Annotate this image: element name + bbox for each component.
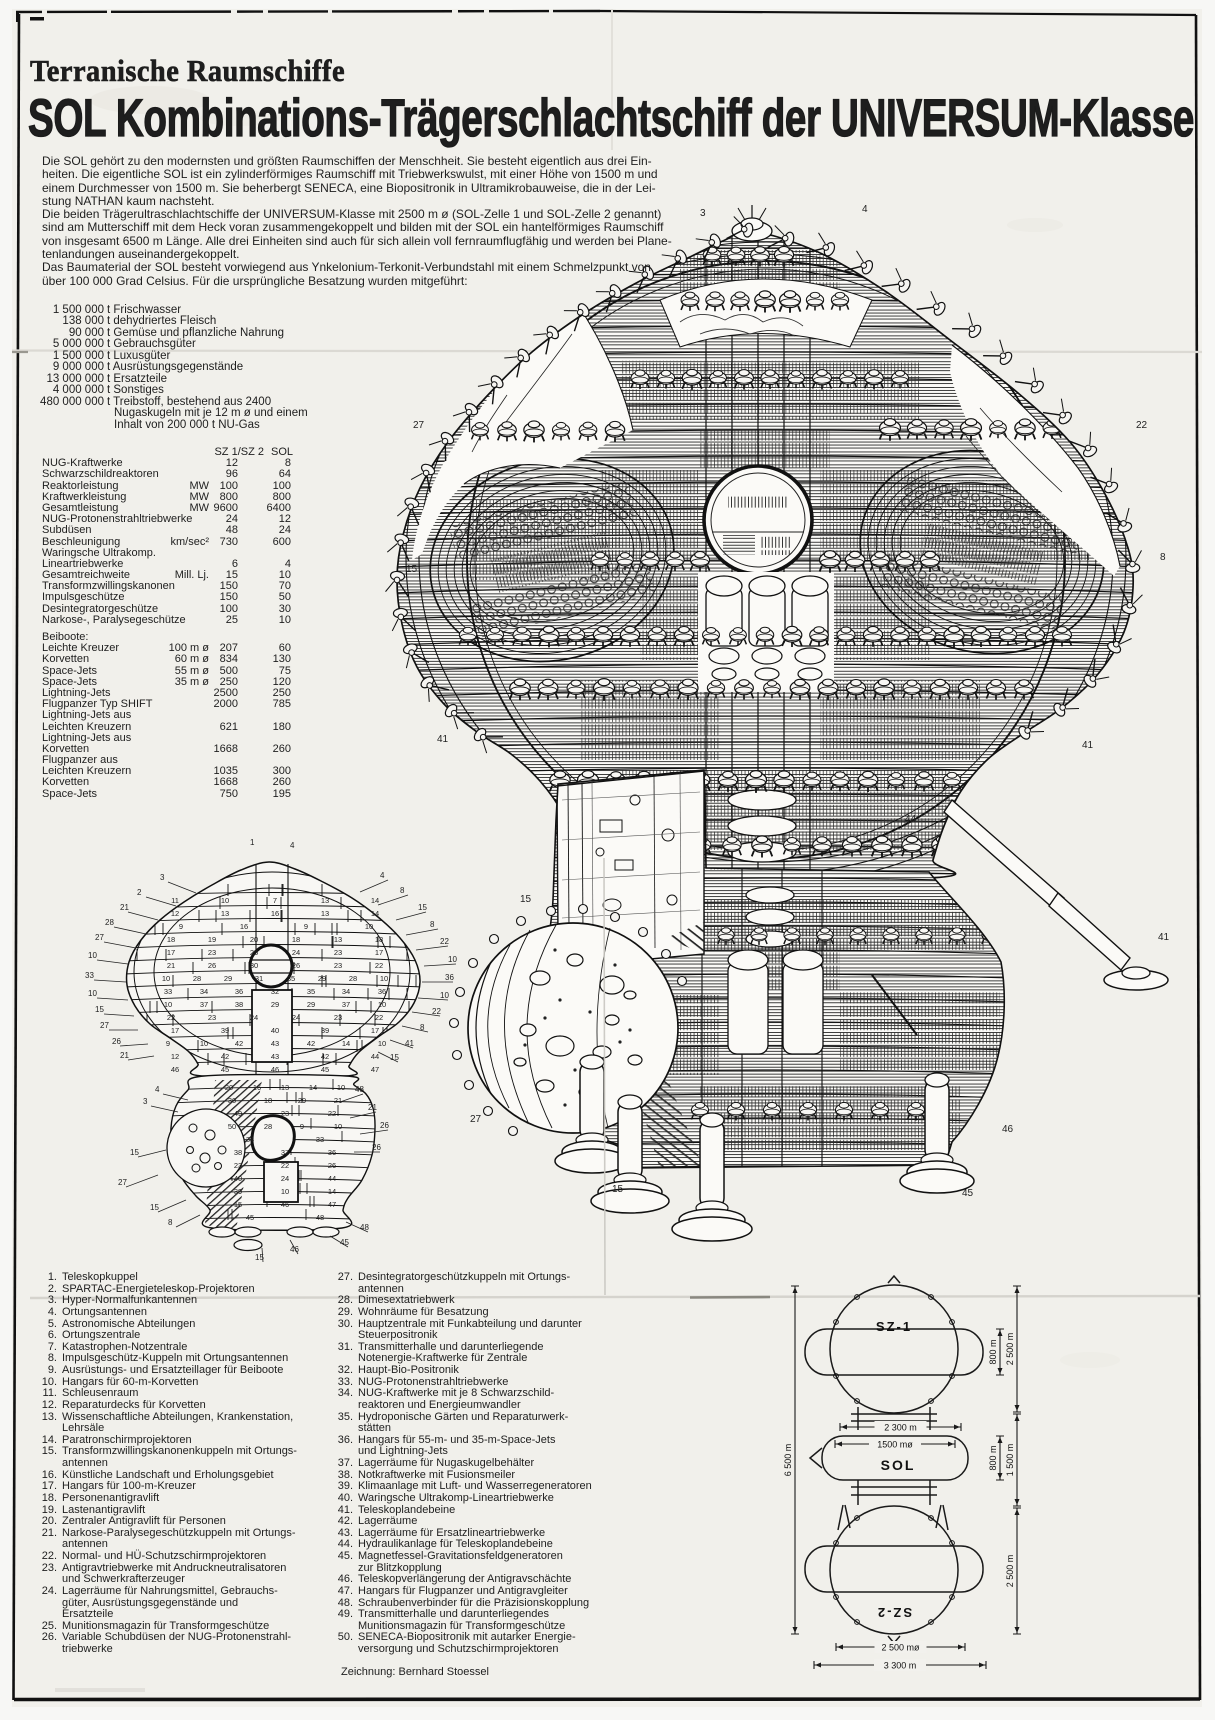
svg-text:17: 17 (167, 948, 175, 957)
svg-text:26: 26 (372, 1143, 381, 1152)
svg-text:21: 21 (368, 1103, 377, 1112)
svg-text:45: 45 (321, 1065, 329, 1074)
svg-text:28: 28 (105, 918, 114, 927)
svg-text:26: 26 (328, 1161, 336, 1170)
svg-text:4: 4 (862, 204, 868, 215)
svg-text:11: 11 (171, 896, 179, 905)
svg-text:13: 13 (334, 935, 342, 944)
svg-text:40: 40 (234, 1174, 242, 1183)
svg-text:10: 10 (221, 896, 229, 905)
svg-text:9: 9 (304, 922, 308, 931)
svg-text:10: 10 (164, 1000, 172, 1009)
svg-text:20: 20 (250, 935, 258, 944)
svg-text:15: 15 (150, 1203, 159, 1212)
svg-text:42: 42 (307, 1039, 315, 1048)
svg-text:3: 3 (143, 1097, 148, 1106)
svg-text:42: 42 (235, 1039, 243, 1048)
svg-text:17: 17 (371, 1026, 379, 1035)
svg-text:37: 37 (342, 1000, 350, 1009)
svg-text:46: 46 (271, 1065, 279, 1074)
svg-text:27: 27 (413, 420, 425, 431)
svg-text:10: 10 (448, 955, 457, 964)
svg-text:44: 44 (905, 814, 917, 825)
svg-text:13: 13 (281, 1083, 289, 1092)
svg-text:27: 27 (118, 1178, 127, 1187)
svg-text:29: 29 (298, 1096, 306, 1105)
svg-text:3: 3 (700, 208, 706, 219)
svg-text:3 300 m: 3 300 m (884, 1661, 917, 1671)
svg-text:15: 15 (95, 1005, 104, 1014)
svg-text:23: 23 (334, 961, 342, 970)
svg-text:39: 39 (234, 1187, 242, 1196)
svg-text:15: 15 (418, 903, 427, 912)
svg-text:37: 37 (281, 1148, 289, 1157)
svg-text:46: 46 (171, 1065, 179, 1074)
svg-text:29: 29 (307, 1000, 315, 1009)
svg-text:SOL: SOL (881, 1457, 916, 1473)
svg-text:29: 29 (224, 974, 232, 983)
svg-text:40: 40 (271, 1026, 279, 1035)
svg-text:45: 45 (340, 1238, 349, 1247)
svg-text:6 500 m: 6 500 m (783, 1444, 793, 1477)
svg-text:27: 27 (100, 1021, 109, 1030)
svg-text:36: 36 (445, 973, 454, 982)
svg-text:15: 15 (255, 1253, 264, 1262)
svg-text:8: 8 (400, 886, 405, 895)
svg-text:49: 49 (234, 1109, 242, 1118)
svg-text:39: 39 (221, 1026, 229, 1035)
svg-text:43: 43 (271, 1052, 279, 1061)
svg-text:30: 30 (228, 1096, 236, 1105)
svg-text:13: 13 (221, 909, 229, 918)
svg-text:38: 38 (234, 1148, 242, 1157)
svg-text:24: 24 (292, 1013, 300, 1022)
svg-text:44: 44 (371, 1052, 379, 1061)
svg-text:3: 3 (160, 873, 165, 882)
svg-text:10: 10 (378, 1000, 386, 1009)
svg-text:47: 47 (371, 1065, 379, 1074)
svg-text:46: 46 (281, 1200, 289, 1209)
svg-text:28: 28 (349, 974, 357, 983)
svg-text:33: 33 (85, 971, 94, 980)
svg-text:12: 12 (171, 909, 179, 918)
svg-text:7: 7 (273, 896, 277, 905)
svg-text:8: 8 (430, 920, 435, 929)
svg-text:19: 19 (208, 935, 216, 944)
svg-text:9: 9 (166, 1039, 170, 1048)
svg-text:45: 45 (246, 1213, 254, 1222)
svg-text:22: 22 (375, 961, 383, 970)
svg-text:34: 34 (342, 987, 350, 996)
svg-text:1500 mø: 1500 mø (877, 1440, 913, 1450)
svg-text:10: 10 (88, 951, 97, 960)
svg-text:10: 10 (334, 1122, 342, 1131)
svg-text:10: 10 (440, 991, 449, 1000)
svg-text:23: 23 (208, 948, 216, 957)
svg-text:28: 28 (264, 1122, 272, 1131)
svg-text:38: 38 (235, 1000, 243, 1009)
svg-text:27: 27 (470, 1114, 482, 1125)
svg-text:15: 15 (406, 564, 418, 575)
svg-text:21: 21 (120, 1051, 129, 1060)
svg-text:12: 12 (171, 1052, 179, 1061)
svg-text:30: 30 (250, 961, 258, 970)
svg-text:46: 46 (1002, 1124, 1014, 1135)
svg-text:21: 21 (334, 1096, 342, 1105)
svg-text:14: 14 (371, 896, 379, 905)
svg-text:32: 32 (271, 987, 279, 996)
svg-text:16: 16 (271, 909, 279, 918)
svg-text:10: 10 (200, 1039, 208, 1048)
svg-text:42: 42 (221, 1052, 229, 1061)
svg-text:17: 17 (375, 948, 383, 957)
svg-text:8: 8 (1160, 552, 1166, 563)
svg-text:42: 42 (321, 1052, 329, 1061)
svg-text:4: 4 (290, 841, 295, 850)
svg-text:4: 4 (155, 1085, 160, 1094)
svg-text:47: 47 (328, 1200, 336, 1209)
svg-text:33: 33 (316, 1135, 324, 1144)
svg-text:23: 23 (234, 1161, 242, 1170)
svg-text:10: 10 (337, 1083, 345, 1092)
svg-text:SZ-2: SZ-2 (876, 1605, 912, 1620)
svg-text:22: 22 (1136, 420, 1148, 431)
svg-text:33: 33 (164, 987, 172, 996)
svg-text:1 500 m: 1 500 m (1005, 1444, 1015, 1477)
svg-text:2 500 m: 2 500 m (1005, 1555, 1015, 1588)
svg-text:34: 34 (200, 987, 208, 996)
svg-text:14: 14 (309, 1083, 317, 1092)
svg-text:4: 4 (380, 871, 385, 880)
svg-text:8: 8 (420, 1023, 425, 1032)
svg-text:15: 15 (520, 894, 532, 905)
svg-text:10: 10 (378, 1039, 386, 1048)
svg-text:22: 22 (281, 1161, 289, 1170)
svg-text:26: 26 (380, 1121, 389, 1130)
svg-text:2 500 m: 2 500 m (1005, 1333, 1015, 1366)
svg-text:39: 39 (321, 1026, 329, 1035)
svg-text:36: 36 (328, 1148, 336, 1157)
svg-text:34: 34 (246, 1135, 254, 1144)
svg-text:2: 2 (137, 888, 142, 897)
svg-text:35: 35 (287, 974, 295, 983)
svg-text:22: 22 (440, 937, 449, 946)
svg-text:26: 26 (292, 961, 300, 970)
svg-text:800 m: 800 m (988, 1339, 998, 1364)
svg-text:41: 41 (405, 1039, 414, 1048)
svg-text:22: 22 (328, 1109, 336, 1118)
svg-text:SZ-1: SZ-1 (876, 1319, 912, 1334)
svg-text:22: 22 (375, 1013, 383, 1022)
svg-text:26: 26 (112, 1037, 121, 1046)
svg-text:18: 18 (264, 1096, 272, 1105)
svg-text:10: 10 (380, 974, 388, 983)
svg-text:10: 10 (281, 1187, 289, 1196)
svg-text:48: 48 (360, 1223, 369, 1232)
svg-text:46: 46 (290, 1245, 299, 1254)
svg-text:800 m: 800 m (988, 1445, 998, 1470)
svg-text:16: 16 (240, 922, 248, 931)
svg-text:35: 35 (307, 987, 315, 996)
svg-text:23: 23 (334, 1013, 342, 1022)
svg-text:48: 48 (355, 1085, 364, 1094)
svg-text:28: 28 (193, 974, 201, 983)
svg-text:14: 14 (371, 909, 379, 918)
svg-text:21: 21 (120, 903, 129, 912)
svg-text:10: 10 (365, 922, 373, 931)
svg-text:22: 22 (167, 1013, 175, 1022)
svg-text:2 300 m: 2 300 m (884, 1423, 917, 1433)
svg-text:29: 29 (318, 974, 326, 983)
svg-text:1: 1 (250, 838, 255, 847)
svg-text:23: 23 (281, 1109, 289, 1118)
svg-text:29: 29 (271, 1000, 279, 1009)
svg-text:41: 41 (1158, 932, 1170, 943)
svg-text:21: 21 (167, 961, 175, 970)
svg-text:45: 45 (962, 1188, 974, 1199)
svg-text:48: 48 (316, 1213, 324, 1222)
svg-text:26: 26 (208, 961, 216, 970)
svg-text:24: 24 (250, 1013, 258, 1022)
svg-text:13: 13 (321, 909, 329, 918)
svg-text:44: 44 (328, 1174, 336, 1183)
svg-text:18: 18 (292, 935, 300, 944)
svg-text:31: 31 (255, 974, 263, 983)
svg-text:2 500 mø: 2 500 mø (881, 1643, 920, 1653)
svg-text:10: 10 (88, 989, 97, 998)
svg-text:15: 15 (390, 1053, 399, 1062)
svg-text:14: 14 (342, 1039, 350, 1048)
svg-text:50: 50 (228, 1122, 236, 1131)
svg-text:36: 36 (235, 987, 243, 996)
svg-text:17: 17 (171, 1026, 179, 1035)
svg-text:23: 23 (208, 1013, 216, 1022)
svg-text:27: 27 (95, 933, 104, 942)
svg-text:15: 15 (234, 1200, 242, 1209)
svg-text:23: 23 (334, 948, 342, 957)
svg-text:45: 45 (221, 1065, 229, 1074)
svg-text:37: 37 (200, 1000, 208, 1009)
svg-text:24: 24 (281, 1174, 289, 1183)
svg-text:36: 36 (378, 987, 386, 996)
svg-text:18: 18 (375, 935, 383, 944)
svg-text:18: 18 (167, 935, 175, 944)
svg-text:43: 43 (271, 1039, 279, 1048)
svg-text:41: 41 (1082, 740, 1094, 751)
svg-text:9: 9 (179, 922, 183, 931)
svg-text:9: 9 (300, 1122, 304, 1131)
svg-text:24: 24 (292, 948, 300, 957)
svg-text:13: 13 (321, 896, 329, 905)
svg-text:16: 16 (253, 1083, 261, 1092)
svg-text:8: 8 (168, 1218, 173, 1227)
svg-text:15: 15 (130, 1148, 139, 1157)
svg-text:25: 25 (250, 948, 258, 957)
svg-text:10: 10 (162, 974, 170, 983)
svg-text:41: 41 (437, 734, 449, 745)
svg-text:15: 15 (612, 1184, 624, 1195)
svg-text:22: 22 (432, 1007, 441, 1016)
svg-text:20: 20 (225, 1083, 233, 1092)
svg-text:14: 14 (328, 1187, 336, 1196)
